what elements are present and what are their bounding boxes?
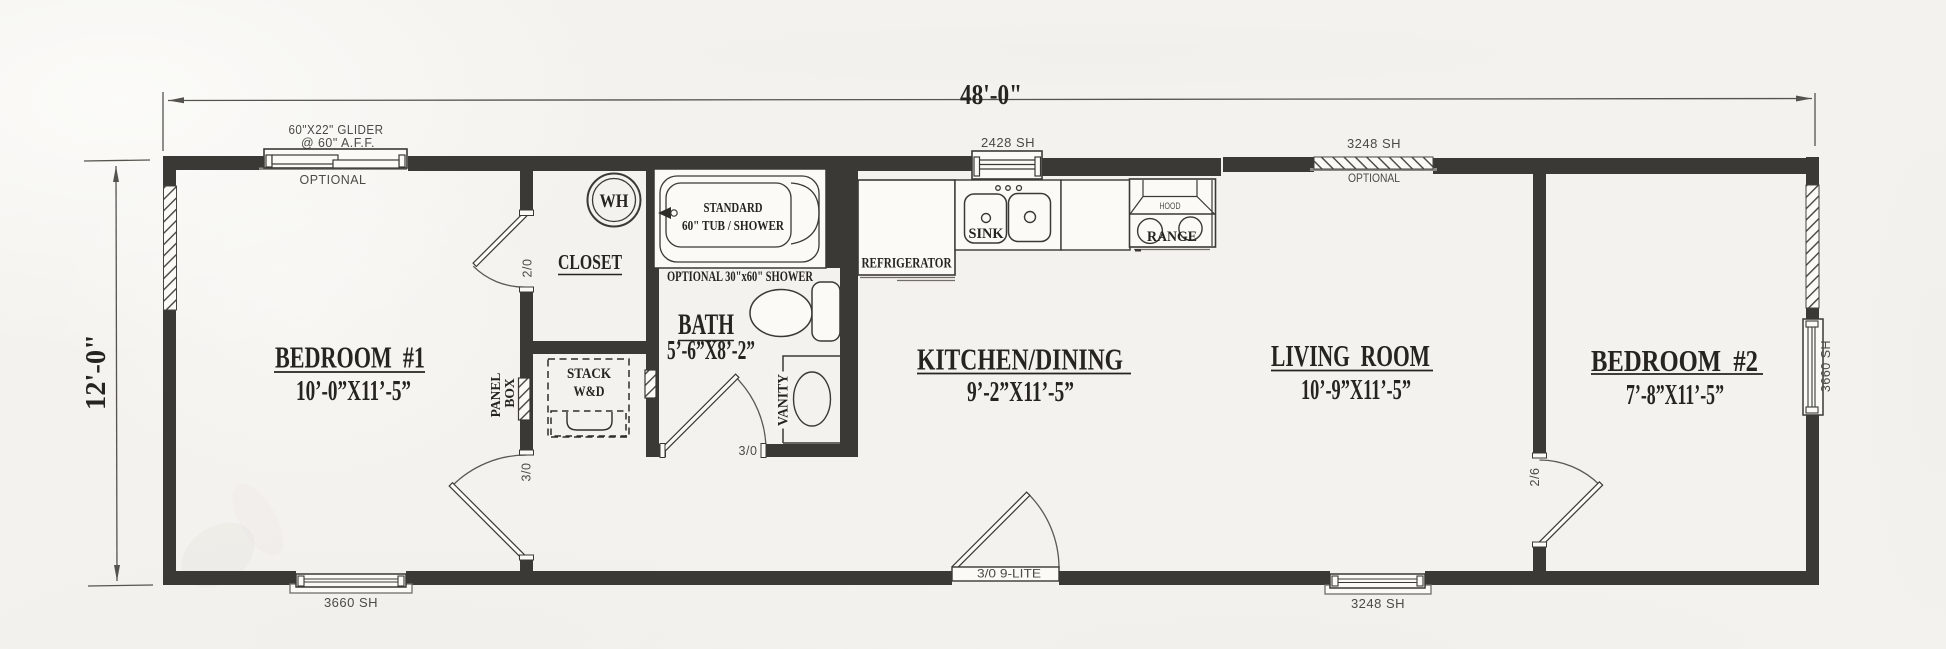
svg-text:3/0: 3/0 xyxy=(739,444,758,458)
svg-text:RANGE: RANGE xyxy=(1147,229,1197,245)
svg-text:60" TUB / SHOWER: 60" TUB / SHOWER xyxy=(682,219,785,234)
svg-text:3/0 9-LITE: 3/0 9-LITE xyxy=(977,567,1041,581)
svg-text:CLOSET: CLOSET xyxy=(558,250,622,274)
svg-text:STANDARD: STANDARD xyxy=(704,201,763,216)
svg-text:60"X22" GLIDER: 60"X22" GLIDER xyxy=(289,123,384,137)
svg-text:REFRIGERATOR: REFRIGERATOR xyxy=(862,256,952,272)
svg-text:BEDROOM #2: BEDROOM #2 xyxy=(1591,343,1758,378)
svg-text:3660 SH: 3660 SH xyxy=(1819,340,1833,392)
svg-text:10’-0”X11’-5”: 10’-0”X11’-5” xyxy=(296,375,411,407)
svg-text:KITCHEN/DINING: KITCHEN/DINING xyxy=(917,342,1123,377)
svg-text:BEDROOM #1: BEDROOM #1 xyxy=(275,340,425,375)
svg-text:W&D: W&D xyxy=(574,384,605,400)
svg-text:3/0: 3/0 xyxy=(520,463,534,482)
svg-text:@ 60" A.F.F.: @ 60" A.F.F. xyxy=(301,136,375,150)
svg-text:STACK: STACK xyxy=(567,366,611,382)
svg-text:10’-9”X11’-5”: 10’-9”X11’-5” xyxy=(1301,374,1411,406)
svg-text:3248 SH: 3248 SH xyxy=(1347,136,1401,151)
svg-text:WH: WH xyxy=(600,191,629,212)
svg-text:PANEL: PANEL xyxy=(488,373,503,418)
svg-text:2/6: 2/6 xyxy=(1528,468,1542,487)
svg-text:3660 SH: 3660 SH xyxy=(324,595,378,610)
svg-text:VANITY: VANITY xyxy=(776,374,792,426)
svg-text:BOX: BOX xyxy=(502,378,517,408)
svg-text:HOOD: HOOD xyxy=(1160,201,1181,212)
svg-text:12'-0": 12'-0" xyxy=(81,334,112,410)
svg-text:OPTIONAL: OPTIONAL xyxy=(1348,171,1400,185)
svg-text:OPTIONAL 30"x60" SHOWER: OPTIONAL 30"x60" SHOWER xyxy=(667,269,813,285)
svg-text:2428 SH: 2428 SH xyxy=(981,135,1035,150)
svg-text:5’-6”X8’-2”: 5’-6”X8’-2” xyxy=(667,335,755,365)
svg-text:SINK: SINK xyxy=(969,226,1005,242)
svg-text:3248 SH: 3248 SH xyxy=(1351,596,1405,611)
svg-text:9’-2”X11’-5”: 9’-2”X11’-5” xyxy=(967,376,1074,408)
svg-text:7’-8”X11’-5”: 7’-8”X11’-5” xyxy=(1626,379,1724,411)
svg-text:LIVING ROOM: LIVING ROOM xyxy=(1271,338,1430,373)
svg-text:2/0: 2/0 xyxy=(521,259,535,278)
svg-text:OPTIONAL: OPTIONAL xyxy=(300,173,367,187)
svg-text:48'-0": 48'-0" xyxy=(960,80,1022,111)
